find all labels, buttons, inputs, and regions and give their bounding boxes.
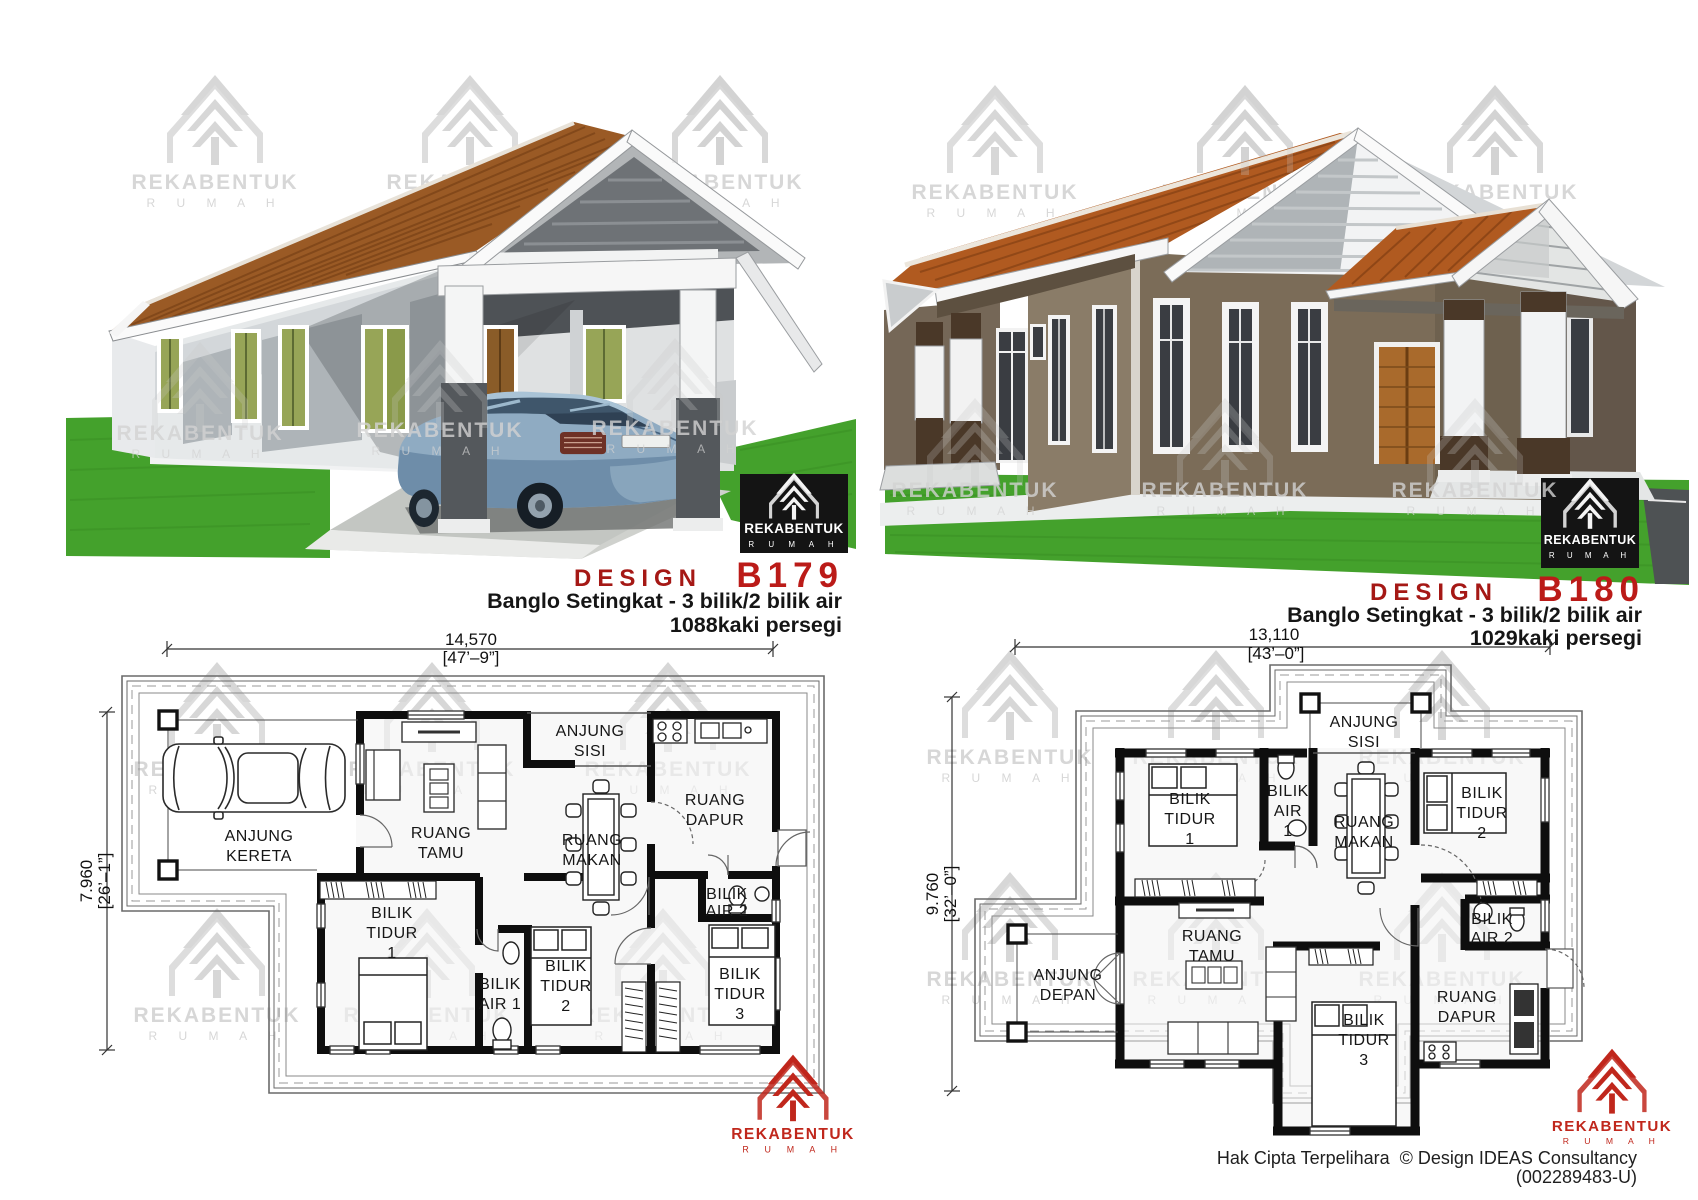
svg-text:TIDUR: TIDUR — [366, 925, 417, 942]
svg-text:REKABENTUK: REKABENTUK — [1544, 533, 1637, 547]
svg-text:TIDUR: TIDUR — [1164, 811, 1215, 828]
svg-text:R U M A H: R U M A H — [1156, 504, 1293, 518]
svg-text:Banglo Setingkat - 3 bilik/2 b: Banglo Setingkat - 3 bilik/2 bilik air — [1287, 603, 1642, 627]
svg-text:R U M A H: R U M A H — [1549, 551, 1631, 560]
svg-text:14,570: 14,570 — [445, 630, 497, 649]
svg-text:SISI: SISI — [1348, 734, 1380, 751]
svg-text:KERETA: KERETA — [226, 848, 292, 865]
svg-text:DAPUR: DAPUR — [1438, 1009, 1497, 1026]
svg-text:BILIK: BILIK — [1471, 911, 1513, 928]
svg-text:3: 3 — [735, 1006, 744, 1023]
svg-text:R U M A H: R U M A H — [748, 540, 839, 549]
svg-text:TIDUR: TIDUR — [1338, 1032, 1389, 1049]
svg-text:R U M A H: R U M A H — [906, 504, 1043, 518]
svg-text:DEPAN: DEPAN — [1040, 987, 1096, 1004]
svg-text:9.760: 9.760 — [923, 873, 942, 916]
svg-text:TAMU: TAMU — [1189, 948, 1235, 965]
svg-text:R U M A H: R U M A H — [606, 442, 743, 456]
svg-text:TIDUR: TIDUR — [540, 978, 591, 995]
svg-text:R U M A H: R U M A H — [1406, 504, 1543, 518]
svg-text:[43’–0”]: [43’–0”] — [1248, 644, 1305, 663]
svg-text:R U M A H: R U M A H — [131, 447, 268, 461]
svg-text:BILIK: BILIK — [545, 958, 587, 975]
svg-text:BILIK: BILIK — [1461, 785, 1503, 802]
svg-text:3: 3 — [1359, 1052, 1368, 1069]
svg-text:REKABENTUK: REKABENTUK — [1392, 479, 1559, 502]
svg-text:Banglo Setingkat - 3 bilik/2 b: Banglo Setingkat - 3 bilik/2 bilik air — [487, 589, 842, 613]
svg-text:RUANG: RUANG — [685, 792, 745, 809]
svg-text:1: 1 — [387, 945, 396, 962]
svg-text:REKABENTUK: REKABENTUK — [592, 417, 759, 440]
svg-text:TIDUR: TIDUR — [1456, 805, 1507, 822]
svg-text:ANJUNG: ANJUNG — [556, 723, 625, 740]
svg-text:RUANG: RUANG — [1334, 814, 1394, 831]
svg-text:SISI: SISI — [574, 743, 606, 760]
svg-text:RUANG: RUANG — [1437, 989, 1497, 1006]
svg-text:DAPUR: DAPUR — [686, 812, 745, 829]
svg-text:13,110: 13,110 — [1249, 625, 1300, 644]
svg-text:1: 1 — [1283, 823, 1292, 840]
svg-text:ANJUNG: ANJUNG — [1330, 714, 1399, 731]
svg-text:BILIK: BILIK — [1343, 1012, 1385, 1029]
svg-text:REKABENTUK: REKABENTUK — [117, 422, 284, 445]
svg-text:RUANG: RUANG — [562, 832, 622, 849]
svg-text:1: 1 — [1185, 831, 1194, 848]
svg-text:2: 2 — [561, 998, 570, 1015]
svg-text:TAMU: TAMU — [418, 845, 464, 862]
svg-text:REKABENTUK: REKABENTUK — [357, 419, 524, 442]
svg-text:BILIK: BILIK — [479, 976, 521, 993]
svg-text:(002289483-U): (002289483-U) — [1516, 1167, 1637, 1187]
svg-text:ANJUNG: ANJUNG — [225, 828, 294, 845]
svg-text:ANJUNG: ANJUNG — [1034, 967, 1103, 984]
svg-text:7.960: 7.960 — [77, 860, 96, 903]
svg-text:MAKAN: MAKAN — [1334, 834, 1393, 851]
svg-text:1088kaki persegi: 1088kaki persegi — [670, 613, 842, 637]
svg-text:2: 2 — [1477, 825, 1486, 842]
svg-text:AIR 1: AIR 1 — [479, 996, 522, 1013]
svg-text:REKABENTUK: REKABENTUK — [1142, 479, 1309, 502]
svg-text:RUANG: RUANG — [1182, 928, 1242, 945]
svg-text:AIR: AIR — [1274, 803, 1302, 820]
svg-text:RUANG: RUANG — [411, 825, 471, 842]
svg-text:AIR 2: AIR 2 — [706, 903, 749, 920]
svg-text:REKABENTUK: REKABENTUK — [892, 479, 1059, 502]
svg-text:DESIGN: DESIGN — [574, 565, 702, 592]
svg-text:REKABENTUK: REKABENTUK — [744, 521, 844, 536]
svg-text:[47’–9”]: [47’–9”] — [443, 648, 500, 667]
svg-text:Hak Cipta Terpelihara © Desig: Hak Cipta Terpelihara © Design IDEAS Con… — [1217, 1148, 1637, 1168]
svg-text:DESIGN: DESIGN — [1370, 579, 1498, 606]
svg-text:[32’–0”]: [32’–0”] — [941, 866, 960, 923]
svg-text:BILIK: BILIK — [706, 886, 748, 903]
svg-text:BILIK: BILIK — [719, 966, 761, 983]
svg-text:R U M A H: R U M A H — [371, 444, 508, 458]
svg-text:BILIK: BILIK — [1169, 791, 1211, 808]
svg-text:[26’–1”]: [26’–1”] — [95, 853, 114, 910]
svg-text:AIR 2: AIR 2 — [1471, 930, 1514, 947]
svg-text:BILIK: BILIK — [1267, 783, 1309, 800]
svg-text:BILIK: BILIK — [371, 905, 413, 922]
svg-text:MAKAN: MAKAN — [562, 852, 621, 869]
svg-text:TIDUR: TIDUR — [714, 986, 765, 1003]
